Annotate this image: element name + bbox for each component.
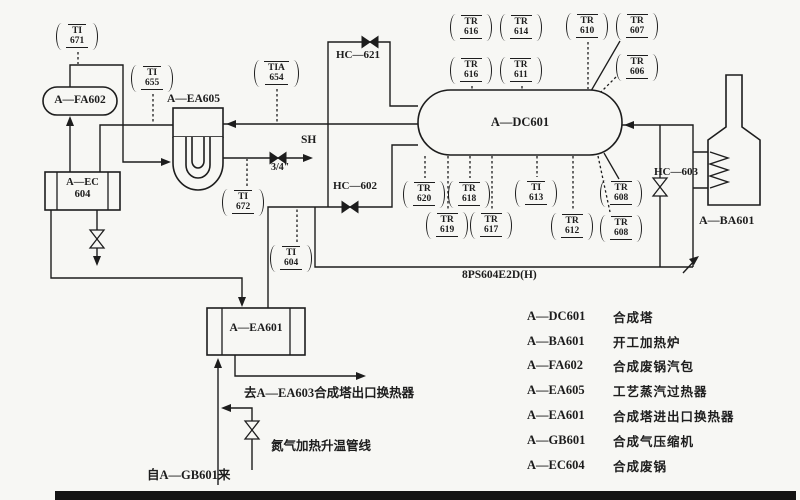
paren-right-icon [504,212,512,239]
arrow-gb601-up [214,358,222,368]
instrument-tag: TR [510,58,531,70]
legend-code: A—BA601 [527,334,613,349]
paren-left-icon [450,14,458,41]
paren-left-icon [56,23,64,50]
arrow-into-ea605-main [226,120,236,128]
instrument-number: 618 [458,194,480,206]
paren-right-icon [437,181,445,208]
instrument-tia654: TIA654 [254,58,299,88]
legend-desc: 合成塔进出口换热器 [613,406,735,425]
arrow-ea601-out [356,372,366,380]
instrument-tr608-top: TR608 [600,178,642,208]
paren-right-icon [634,215,642,242]
ea605-shell [173,137,223,190]
instrument-tr606: TR606 [616,52,658,82]
paren-right-icon [650,13,658,40]
instrument-number: 607 [626,26,648,38]
instrument-number: 608 [610,228,632,240]
paren-right-icon [534,57,542,84]
paren-left-icon [426,212,434,239]
instrument-tag: TR [459,182,480,194]
instrument-tag: TR [627,55,648,67]
paren-right-icon [549,180,557,207]
legend-code: A—EA605 [527,383,613,398]
valve-nitrogen [245,421,259,439]
paren-left-icon [500,14,508,41]
instrument-tag: TI [68,24,86,36]
paren-right-icon [634,180,642,207]
pipe-ec604-to-ea601 [51,210,242,297]
label-ba601: A—BA601 [699,214,754,228]
legend-row: A—FA602合成废锅汽包 [527,354,735,379]
paren-right-icon [256,189,264,216]
paren-left-icon [566,13,574,40]
instrument-tag: TIA [264,61,289,73]
instrument-number: 616 [460,70,482,82]
instrument-number: 655 [141,78,163,90]
valve-hc603 [653,178,667,196]
instrument-tag: TR [511,15,532,27]
paren-left-icon [222,189,230,216]
paren-right-icon [460,212,468,239]
arrow-nitrogen-left [221,404,231,412]
instrument-tr616-bottom: TR616 [450,55,492,85]
paren-left-icon [616,13,624,40]
label-ea605: A—EA605 [167,93,220,106]
label-nitrogen-line: 氮气加热升温管线 [271,439,371,453]
instrument-tag: TR [414,182,435,194]
instrument-number: 610 [576,26,598,38]
instrument-number: 614 [510,27,532,39]
arrow-into-ea601-top [238,297,246,307]
valve-hc621 [362,37,378,48]
instrument-tr612: TR612 [551,211,593,241]
legend-row: A—EC604合成废锅 [527,453,735,478]
legend-row: A—EA605工艺蒸汽过热器 [527,378,735,403]
paren-left-icon [270,245,278,272]
label-ec604-line1: A—EC [66,177,99,188]
paren-right-icon [482,181,490,208]
paren-left-icon [616,54,624,81]
instrument-number: 608 [610,193,632,205]
instrument-tag: TR [437,213,458,225]
paren-right-icon [304,245,312,272]
arrow-riser-up [66,116,74,126]
instrument-number: 611 [510,70,532,82]
instrument-number: 616 [460,27,482,39]
instrument-number: 604 [280,258,302,270]
instrument-tag: TI [143,66,161,78]
instrument-tr616-top: TR616 [450,12,492,42]
label-valve-size: 3/4" [271,162,289,174]
legend-code: A—GB601 [527,433,613,448]
paren-left-icon [470,212,478,239]
instrument-tag: TR [611,216,632,228]
instrument-ti604: TI604 [270,243,312,273]
label-hc603: HC—603 [654,166,698,179]
instrument-ti671: TI671 [56,21,98,51]
instrument-tag: TR [577,14,598,26]
instrument-tr614: TR614 [500,12,542,42]
label-to-ea603: 去A—EA603合成塔出口换热器 [244,386,414,400]
paren-left-icon [600,180,608,207]
paren-left-icon [450,57,458,84]
label-hc602: HC—602 [333,180,377,193]
label-sh: SH [301,134,316,147]
pid-diagram: TI671 TI655 TIA654 TI672 TI604 TR616 TR6… [0,0,800,500]
instrument-tr619: TR619 [426,210,468,240]
label-line-spec: 8PS604E2D(H) [462,269,537,282]
pipe-ea601-outlet [235,355,356,376]
instrument-tag: TR [627,14,648,26]
paren-right-icon [650,54,658,81]
scan-edge-band [55,491,796,500]
instrument-tag: TR [481,213,502,225]
arrow-into-ea605-utube [161,158,171,166]
instrument-tr620: TR620 [403,179,445,209]
valve-ec604-drain [90,230,104,248]
arrow-into-dc601 [624,121,634,129]
label-hc621: HC—621 [336,49,380,62]
instrument-tr618: TR618 [448,179,490,209]
paren-right-icon [534,14,542,41]
instrument-tag: TI [234,190,252,202]
instrument-tr608-bottom: TR608 [600,213,642,243]
label-ea601: A—EA601 [207,322,305,335]
paren-right-icon [484,14,492,41]
instrument-number: 619 [436,225,458,237]
paren-right-icon [484,57,492,84]
legend-row: A—EA601合成塔进出口换热器 [527,403,735,428]
legend-desc: 合成废锅汽包 [613,356,694,375]
arrow-8ps-corner [689,256,699,265]
instrument-number: 671 [66,36,88,48]
instrument-tr610: TR610 [566,11,608,41]
paren-left-icon [131,65,139,92]
label-ec604-line2: 604 [75,189,91,200]
paren-left-icon [448,181,456,208]
instrument-number: 612 [561,226,583,238]
paren-right-icon [90,23,98,50]
legend-desc: 合成塔 [613,307,654,326]
instrument-number: 613 [525,193,547,205]
equipment-legend: A—DC601合成塔 A—BA601开工加热炉 A—FA602合成废锅汽包 A—… [527,304,735,478]
legend-code: A—EA601 [527,408,613,423]
instrument-ti655: TI655 [131,63,173,93]
paren-right-icon [585,213,593,240]
legend-desc: 工艺蒸汽过热器 [613,381,708,400]
instrument-number: 654 [265,73,287,85]
instrument-number: 617 [480,225,502,237]
paren-left-icon [254,60,262,87]
paren-left-icon [515,180,523,207]
legend-desc: 合成气压缩机 [613,431,694,450]
legend-desc: 合成废锅 [613,456,667,475]
label-fa602: A—FA602 [43,94,117,107]
arrow-sh-right [303,154,313,162]
paren-left-icon [403,181,411,208]
paren-right-icon [600,13,608,40]
legend-code: A—EC604 [527,458,613,473]
instrument-tr611: TR611 [500,55,542,85]
legend-code: A—FA602 [527,358,613,373]
instrument-number: 620 [413,194,435,206]
instrument-ti613: TI613 [515,178,557,208]
legend-row: A—GB601合成气压缩机 [527,428,735,453]
paren-left-icon [600,215,608,242]
label-dc601: A—DC601 [418,115,622,129]
instrument-tag: TI [282,246,300,258]
instrument-tr617: TR617 [470,210,512,240]
paren-right-icon [165,65,173,92]
legend-row: A—DC601合成塔 [527,304,735,329]
instrument-ti672: TI672 [222,187,264,217]
legend-desc: 开工加热炉 [613,332,681,351]
arrow-drain-down [93,256,101,266]
paren-left-icon [551,213,559,240]
pipe-hc602-branch [268,145,418,308]
instrument-tag: TI [527,181,545,193]
paren-left-icon [500,57,508,84]
ea605-head [173,108,223,137]
instrument-tag: TR [562,214,583,226]
instrument-tag: TR [611,181,632,193]
paren-right-icon [291,60,299,87]
legend-code: A—DC601 [527,309,613,324]
label-from-gb601: 自A—GB601来 [147,468,230,482]
lead-tr608a [604,153,619,179]
instrument-tag: TR [461,58,482,70]
signal-tr606 [601,77,616,92]
valve-hc602 [342,202,358,213]
instrument-tr607: TR607 [616,11,658,41]
legend-row: A—BA601开工加热炉 [527,329,735,354]
instrument-number: 606 [626,67,648,79]
instrument-tag: TR [461,15,482,27]
instrument-number: 672 [232,202,254,214]
